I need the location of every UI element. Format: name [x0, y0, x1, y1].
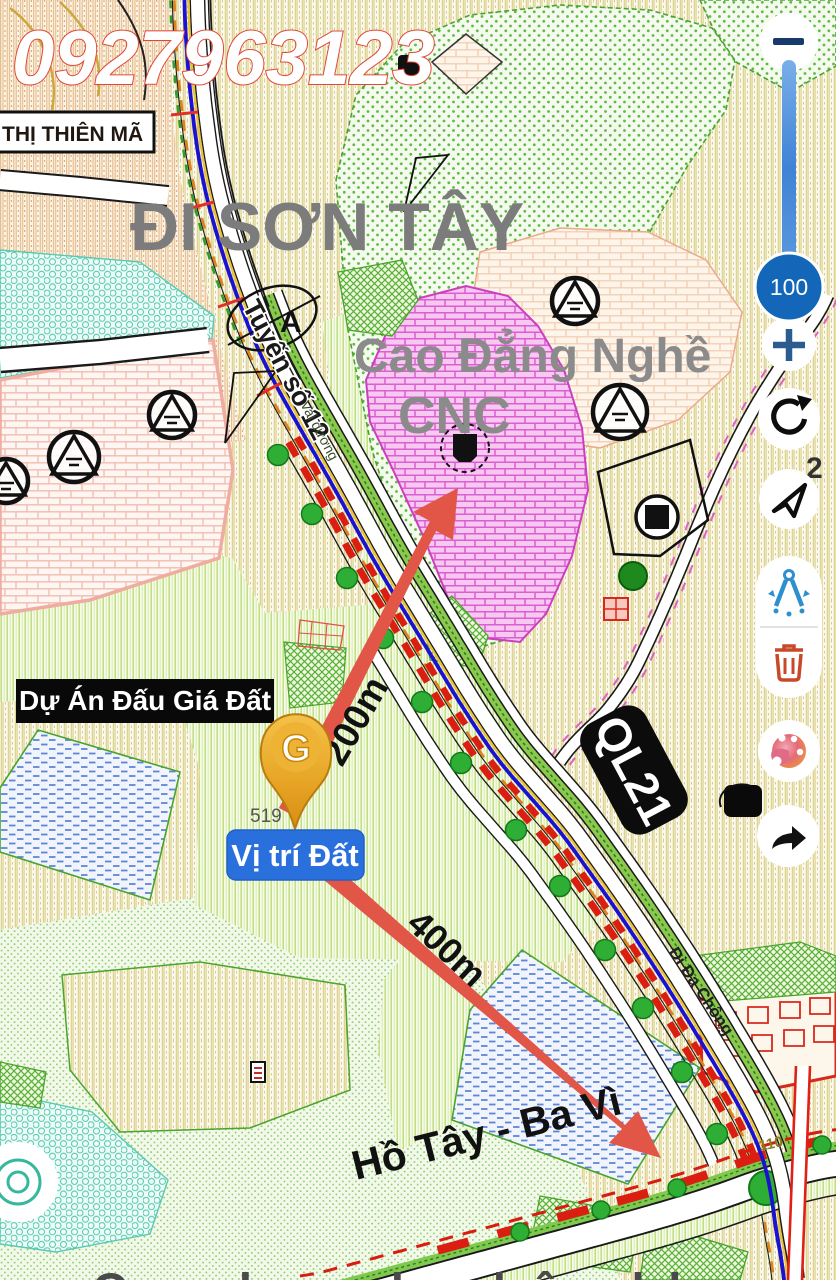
svg-text:519: 519 — [250, 806, 282, 827]
svg-text:Dự Án Đấu Giá Đất: Dự Án Đấu Giá Đất — [19, 685, 271, 716]
svg-text:Vị trí Đất: Vị trí Đất — [231, 838, 358, 873]
svg-text:CNC: CNC — [398, 387, 511, 445]
svg-text:Quy hoạch phân khu: Quy hoạch phân khu — [92, 1265, 747, 1280]
svg-text:G: G — [281, 728, 311, 770]
svg-text:100: 100 — [770, 274, 808, 300]
svg-text:ĐI SƠN TÂY: ĐI SƠN TÂY — [130, 188, 524, 265]
svg-text:THỊ THIÊN MÃ: THỊ THIÊN MÃ — [2, 122, 143, 146]
svg-text:Cao Đẳng Nghề: Cao Đẳng Nghề — [354, 328, 711, 383]
svg-text:0927963123: 0927963123 — [12, 16, 435, 101]
